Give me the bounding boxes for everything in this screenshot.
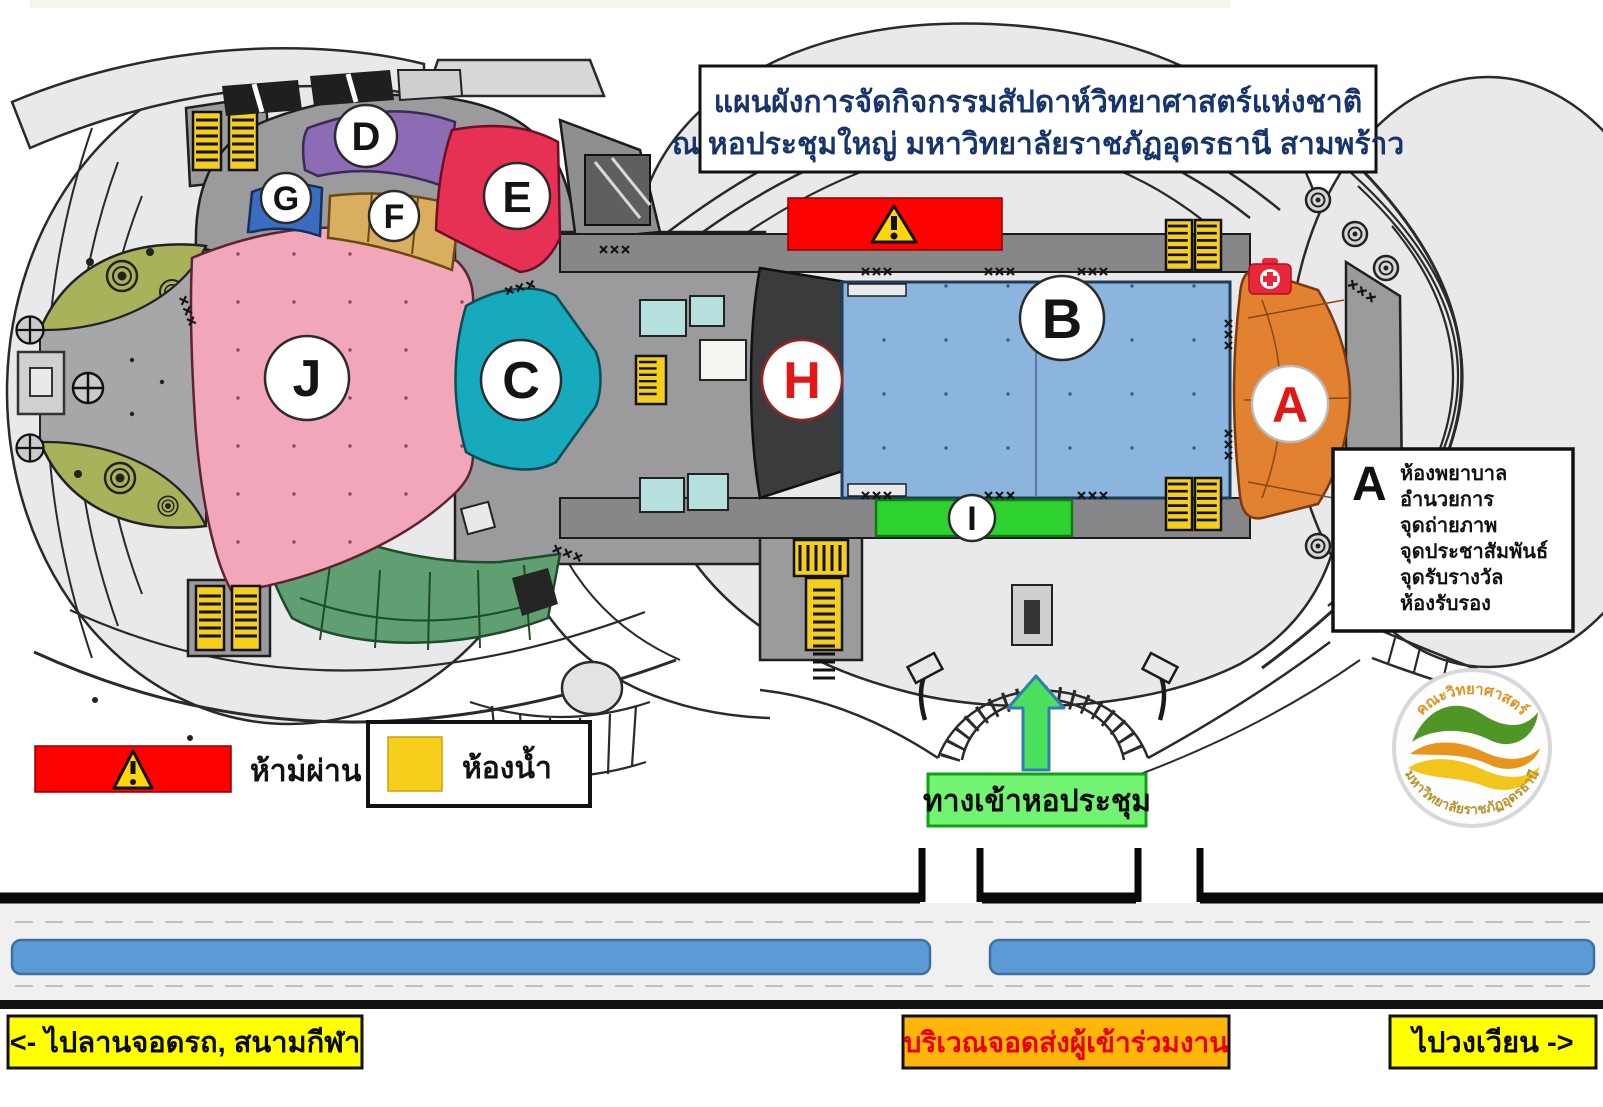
- zone-f-label: F: [384, 198, 405, 236]
- title-box: แผนผังการจัดกิจกรรมสัปดาห์วิทยาศาสตร์แห่…: [672, 66, 1404, 172]
- zone-badge-h: H: [762, 340, 842, 420]
- zone-a-legend-letter: A: [1352, 458, 1387, 511]
- zone-d-label: D: [352, 115, 381, 159]
- zone-j-label: J: [293, 350, 322, 408]
- label-parking-text: <- ไปลานจอดรถ, สนามกีฬา: [10, 1025, 361, 1059]
- zone-a-legend-item: อำนวยการ: [1400, 489, 1494, 511]
- restroom-swatch: [388, 737, 442, 791]
- column-icon: [1306, 188, 1330, 212]
- zone-badge-f: F: [369, 191, 419, 241]
- first-aid-icon: [1249, 258, 1291, 294]
- legend-no-pass-label: ห้ามผ่าน: [250, 755, 362, 788]
- zone-badge-j: J: [265, 336, 349, 420]
- column-icon: [1343, 222, 1367, 246]
- zone-a-label: A: [1272, 377, 1308, 433]
- faculty-logo: คณะวิทยาศาสตร์ มหาวิทยาลัยราชภัฏอุดรธานี: [1394, 670, 1550, 826]
- zone-c-label: C: [502, 352, 540, 410]
- road-edge-bottom: [0, 1000, 1603, 1009]
- label-roundabout: ไปวงเวียน ->: [1390, 1016, 1596, 1068]
- floor-plan-page: J D G F E C H B A I แผนผังการจัดกิจกรรมส…: [0, 0, 1603, 1107]
- page-title-line1: แผนผังการจัดกิจกรรมสัปดาห์วิทยาศาสตร์แห่…: [714, 85, 1363, 119]
- column-icon: [1306, 534, 1330, 558]
- zone-a-legend-item: จุดรับรางวัล: [1400, 567, 1503, 590]
- zone-a-legend-item: จุดประชาสัมพันธ์: [1400, 540, 1548, 564]
- page-title-line2: ณ หอประชุมใหญ่ มหาวิทยาลัยราชภัฏอุดรธานี…: [672, 126, 1404, 163]
- zone-badge-e: E: [484, 163, 550, 229]
- zone-h-label: H: [783, 352, 821, 410]
- zone-badge-d: D: [335, 105, 397, 167]
- entrance-label: ทางเข้าหอประชุม: [923, 785, 1151, 820]
- bus-lane-right: [990, 940, 1594, 974]
- zone-b-label: B: [1042, 287, 1082, 350]
- zone-badge-i: I: [949, 495, 995, 541]
- label-roundabout-text: ไปวงเวียน ->: [1409, 1025, 1573, 1059]
- zone-a-legend-box: A ห้องพยาบาล อำนวยการ จุดถ่ายภาพ จุดประช…: [1333, 449, 1573, 631]
- column-icon: [1374, 256, 1398, 280]
- zone-badge-g: G: [261, 173, 311, 223]
- zone-i-label: I: [967, 500, 976, 538]
- label-dropoff-text: บริเวณจอดส่งผู้เข้าร่วมงาน: [904, 1027, 1229, 1060]
- no-pass-zone: [788, 198, 1002, 250]
- zone-badge-c: C: [481, 340, 561, 420]
- bus-lane-left: [12, 940, 930, 974]
- legend-restroom: ห้องน้ำ: [368, 722, 590, 806]
- label-dropoff: บริเวณจอดส่งผู้เข้าร่วมงาน: [903, 1016, 1229, 1068]
- zone-a-legend-item: จุดถ่ายภาพ: [1400, 515, 1497, 538]
- zone-e-label: E: [502, 173, 531, 222]
- zone-g-label: G: [273, 180, 299, 218]
- zone-badge-a: A: [1252, 366, 1328, 442]
- zone-a-legend-item: ห้องพยาบาล: [1400, 462, 1507, 485]
- label-parking: <- ไปลานจอดรถ, สนามกีฬา: [8, 1016, 362, 1068]
- entrance-label-box: ทางเข้าหอประชุม: [923, 774, 1151, 826]
- zone-badge-b: B: [1020, 276, 1104, 360]
- top-edge-strip: [30, 0, 1230, 8]
- zone-a-legend-item: ห้องรับรอง: [1400, 592, 1491, 615]
